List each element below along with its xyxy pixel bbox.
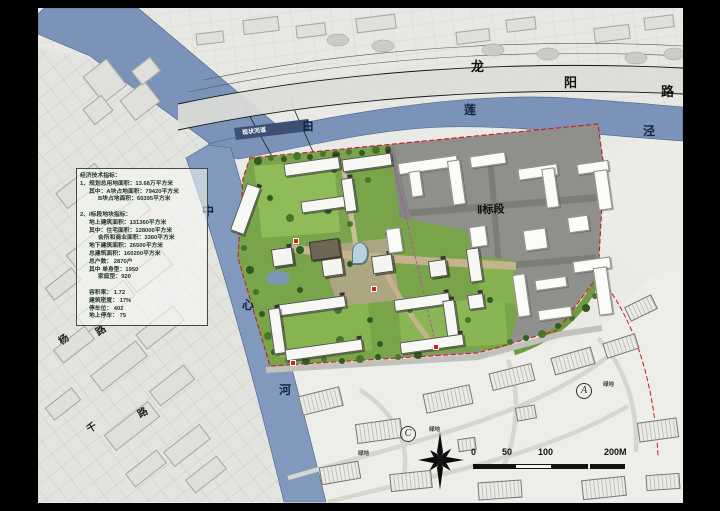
scale-bar-label: 0 [471,447,476,457]
plan-sheet: 龙阳路白莲泾中心河Ⅱ标段现状河道杨路千路绿地绿地绿地AC 经济技术指标：1、规划… [38,8,683,503]
scale-bar-segment [473,464,515,469]
scale-bar-segment [515,464,552,469]
scale-bar-segment [552,464,588,469]
scale-bar-label: 200M [604,447,627,457]
scale-bar-label: 100 [538,447,553,457]
scale-bar-label: 50 [502,447,512,457]
drawing-frame: 龙阳路白莲泾中心河Ⅱ标段现状河道杨路千路绿地绿地绿地AC 经济技术指标：1、规划… [0,0,720,511]
scale-bar-segment [590,464,625,469]
scale-bar: 050100200M [38,8,683,503]
